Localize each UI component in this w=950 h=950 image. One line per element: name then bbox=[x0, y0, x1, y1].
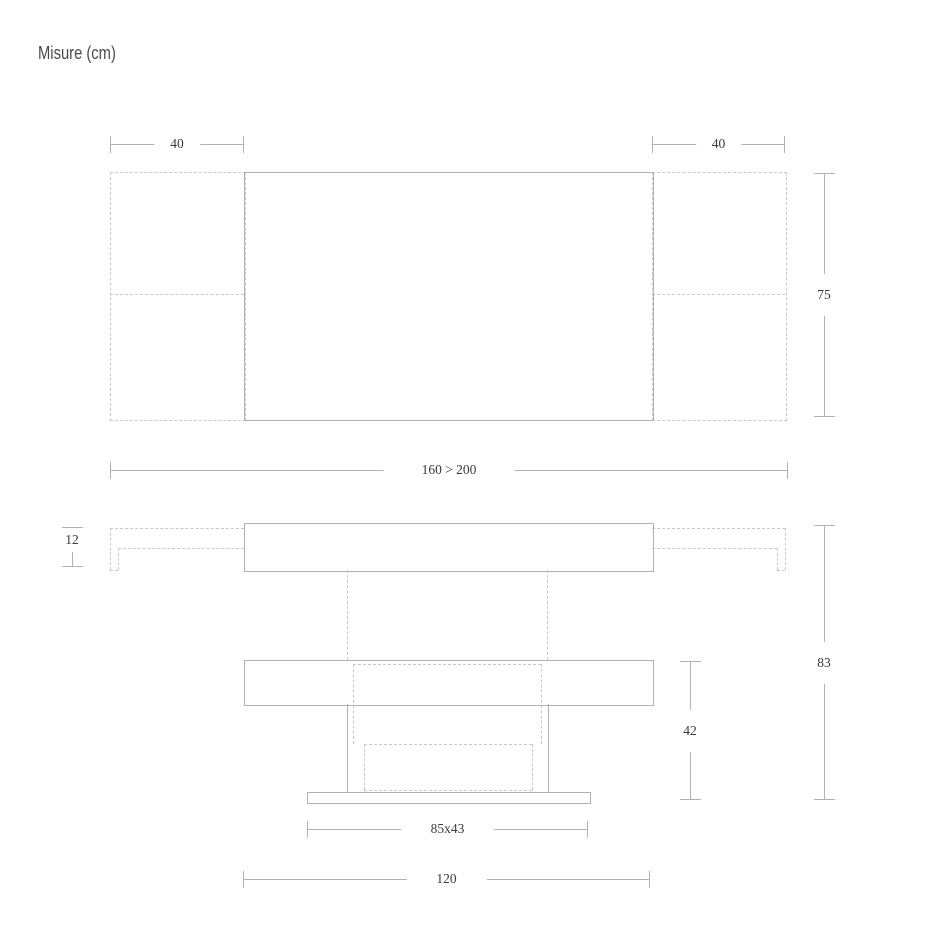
dim-label: 12 bbox=[63, 528, 81, 552]
telescope-section2-bottom bbox=[364, 790, 532, 791]
leaf-left-end-bracket-outer bbox=[110, 528, 111, 570]
measurement-drawing: Misure (cm) 40 40 75 bbox=[0, 0, 950, 950]
dim-tick bbox=[814, 416, 835, 417]
leaf-right-fold-line bbox=[652, 294, 785, 295]
telescope-section2-top bbox=[364, 744, 532, 745]
telescope-section2-right bbox=[532, 744, 533, 790]
telescope-section1-top bbox=[353, 664, 541, 665]
dim-tick bbox=[787, 462, 788, 479]
column-raised-right-edge bbox=[547, 570, 548, 660]
telescope-section1-right bbox=[541, 664, 542, 744]
tabletop-outline-top-view bbox=[244, 172, 654, 421]
dim-tick bbox=[784, 136, 785, 153]
dim-tick bbox=[649, 871, 650, 888]
dim-tick bbox=[587, 821, 588, 838]
dim-label: 85x43 bbox=[401, 822, 495, 836]
dim-tick bbox=[62, 566, 83, 567]
dim-tick bbox=[110, 136, 111, 153]
dim-tick bbox=[814, 173, 835, 174]
leaf-right-top-edge-side-view bbox=[652, 528, 785, 529]
leaf-right-outline-top-view bbox=[652, 172, 787, 421]
leaf-right-end-bracket-outer bbox=[785, 528, 786, 570]
leaf-left-end-bracket-inner bbox=[118, 548, 119, 570]
leaf-right-end-bracket-bottom bbox=[777, 570, 785, 571]
tabletop-raised-side-view bbox=[244, 523, 654, 572]
pedestal-left-edge bbox=[347, 704, 348, 792]
dim-tick bbox=[307, 821, 308, 838]
leaf-left-outline-top-view bbox=[110, 172, 246, 421]
dim-tick bbox=[243, 136, 244, 153]
leaf-left-end-bracket-bottom bbox=[110, 570, 118, 571]
leaf-right-end-bracket-inner bbox=[777, 548, 778, 570]
dim-label: 75 bbox=[814, 274, 834, 316]
pedestal-right-edge bbox=[548, 704, 549, 792]
page-title: Misure (cm) bbox=[38, 43, 116, 64]
dim-tick bbox=[110, 462, 111, 479]
base-plate bbox=[307, 792, 591, 804]
dim-label: 120 bbox=[406, 872, 486, 886]
telescope-section2-left bbox=[364, 744, 365, 790]
leaf-left-fold-line bbox=[110, 294, 244, 295]
dim-tick bbox=[652, 136, 653, 153]
column-raised-left-edge bbox=[347, 570, 348, 660]
telescope-section1-left bbox=[353, 664, 354, 744]
dim-label: 40 bbox=[696, 137, 742, 151]
dim-label: 160 > 200 bbox=[384, 463, 515, 477]
dim-tick bbox=[814, 799, 835, 800]
dim-tick bbox=[680, 661, 701, 662]
dim-tick bbox=[814, 525, 835, 526]
dim-label: 83 bbox=[814, 642, 834, 684]
leaf-left-bottom-edge-side-view bbox=[118, 548, 244, 549]
dim-label: 42 bbox=[680, 710, 700, 752]
tabletop-lowered-side-view bbox=[244, 660, 654, 706]
dim-tick bbox=[243, 871, 244, 888]
dim-label: 40 bbox=[154, 137, 200, 151]
dim-tick bbox=[680, 799, 701, 800]
leaf-left-top-edge-side-view bbox=[110, 528, 244, 529]
leaf-right-bottom-edge-side-view bbox=[652, 548, 777, 549]
